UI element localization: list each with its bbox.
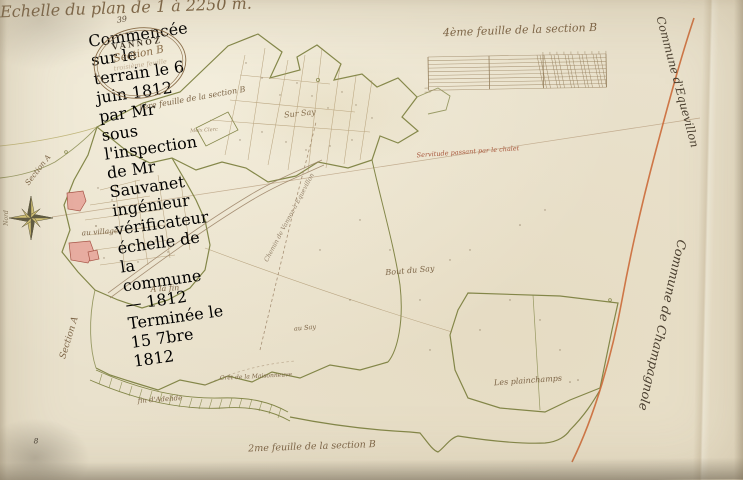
cartouche: VANNOZ Section B troisième feuille Comme… (87, 19, 193, 108)
cartouche-note-line: sous l'inspection de Mr Sauvanet ingénie… (100, 113, 211, 239)
compass-rose (9, 196, 53, 240)
cadastral-map-sheet: VANNOZ Section B troisième feuille Comme… (0, 0, 743, 480)
section-boundaries (0, 34, 618, 452)
commune-boundary-orange (572, 18, 694, 462)
cartouche-note-line: échelle de la commune — 1812 (116, 226, 222, 315)
paper-edge (734, 0, 743, 480)
scale-bar (424, 51, 607, 92)
village-buildings (67, 191, 99, 263)
paper-edge (0, 0, 7, 480)
